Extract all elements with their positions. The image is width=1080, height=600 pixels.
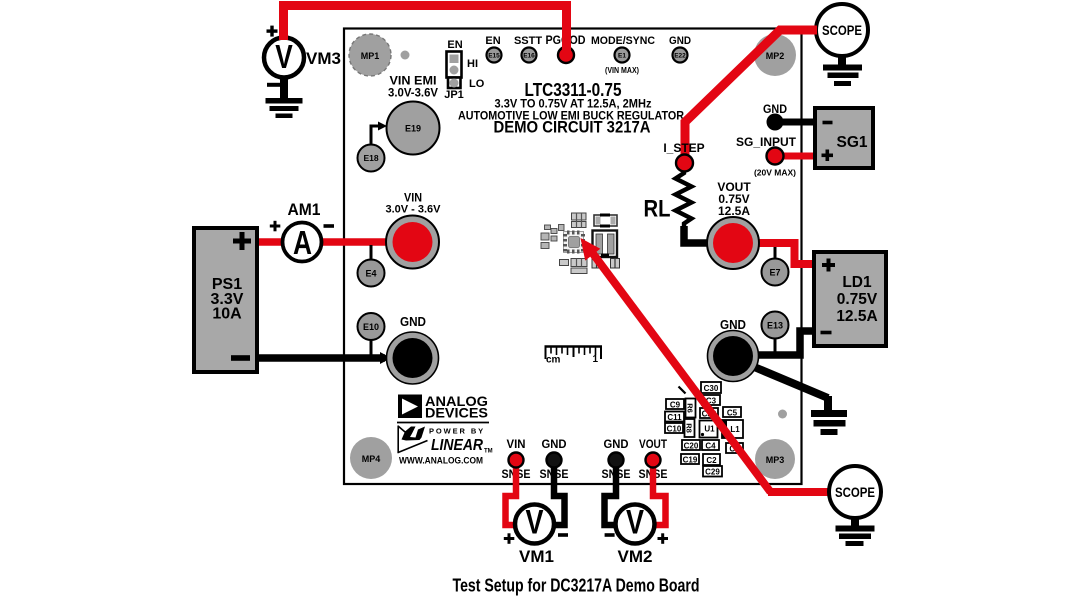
svg-text:AM1: AM1 xyxy=(288,200,321,219)
svg-text:SCOPE: SCOPE xyxy=(822,23,862,38)
svg-text:JP1: JP1 xyxy=(444,89,464,101)
svg-text:E7: E7 xyxy=(769,268,780,278)
svg-text:cm: cm xyxy=(546,355,561,366)
svg-text:V: V xyxy=(526,504,544,542)
svg-text:DEVICES: DEVICES xyxy=(425,405,488,421)
svg-text:12.5A: 12.5A xyxy=(718,204,750,218)
svg-text:VIN EMI: VIN EMI xyxy=(390,74,437,88)
svg-text:C9: C9 xyxy=(670,401,681,410)
svg-text:TM: TM xyxy=(484,449,493,455)
svg-text:GND: GND xyxy=(669,35,691,47)
svg-text:E13: E13 xyxy=(767,321,783,331)
svg-text:MP1: MP1 xyxy=(361,51,380,61)
svg-text:V: V xyxy=(275,38,293,75)
svg-text:LD1: LD1 xyxy=(842,274,872,291)
svg-text:0.75V: 0.75V xyxy=(837,291,878,308)
svg-text:VOUT: VOUT xyxy=(639,437,668,451)
svg-text:R8: R8 xyxy=(685,423,694,433)
svg-text:E18: E18 xyxy=(363,153,378,163)
svg-text:EN: EN xyxy=(485,35,500,47)
svg-text:DEMO CIRCUIT 3217A: DEMO CIRCUIT 3217A xyxy=(494,119,651,137)
svg-text:GND: GND xyxy=(400,314,426,329)
svg-text:LINEAR: LINEAR xyxy=(431,437,483,454)
svg-text:1: 1 xyxy=(593,354,599,365)
svg-text:SG1: SG1 xyxy=(836,134,867,151)
svg-text:C29: C29 xyxy=(705,468,720,477)
svg-text:SCOPE: SCOPE xyxy=(835,485,875,500)
svg-text:3.0V-3.6V: 3.0V-3.6V xyxy=(388,88,438,100)
svg-text:U1: U1 xyxy=(704,425,715,434)
svg-text:C20: C20 xyxy=(684,442,699,451)
svg-text:RL: RL xyxy=(644,196,671,223)
svg-text:3.3V TO 0.75V AT 12.5A, 2MHz: 3.3V TO 0.75V AT 12.5A, 2MHz xyxy=(495,99,652,111)
svg-text:EN: EN xyxy=(447,39,462,51)
svg-text:(VIN MAX): (VIN MAX) xyxy=(605,65,639,75)
svg-text:E22: E22 xyxy=(674,53,686,60)
svg-text:C19: C19 xyxy=(683,456,698,465)
svg-text:VM3: VM3 xyxy=(306,49,341,68)
svg-text:R6: R6 xyxy=(686,403,695,413)
svg-text:MODE/SYNC: MODE/SYNC xyxy=(591,35,655,47)
svg-text:HI: HI xyxy=(467,58,478,70)
svg-text:12.5A: 12.5A xyxy=(836,308,877,325)
svg-text:VIN: VIN xyxy=(507,437,526,451)
svg-text:GND: GND xyxy=(604,437,629,451)
svg-text:A: A xyxy=(293,224,312,261)
svg-text:3.0V - 3.6V: 3.0V - 3.6V xyxy=(385,204,441,216)
svg-text:VM1: VM1 xyxy=(519,547,554,566)
svg-text:GND: GND xyxy=(542,437,567,451)
svg-text:L1: L1 xyxy=(730,425,740,434)
svg-text:E1: E1 xyxy=(618,53,626,60)
svg-text:Test Setup for DC3217A Demo Bo: Test Setup for DC3217A Demo Board xyxy=(453,576,700,596)
svg-text:C5: C5 xyxy=(727,409,738,418)
svg-text:POWER BY: POWER BY xyxy=(429,427,485,436)
svg-text:SG_INPUT: SG_INPUT xyxy=(736,135,797,149)
svg-text:WWW.ANALOG.COM: WWW.ANALOG.COM xyxy=(399,456,483,466)
svg-text:(20V MAX): (20V MAX) xyxy=(754,168,796,178)
svg-text:E16: E16 xyxy=(523,53,535,60)
svg-text:MP4: MP4 xyxy=(362,454,381,464)
svg-text:C4: C4 xyxy=(705,442,716,451)
svg-text:10A: 10A xyxy=(212,306,242,323)
svg-text:SSTT: SSTT xyxy=(514,35,542,47)
svg-text:C2: C2 xyxy=(706,456,717,465)
svg-text:V: V xyxy=(626,504,644,542)
svg-text:LO: LO xyxy=(469,78,485,90)
svg-text:VM2: VM2 xyxy=(618,547,653,566)
svg-text:I_STEP: I_STEP xyxy=(663,141,704,155)
svg-text:LTC3311-0.75: LTC3311-0.75 xyxy=(525,80,622,100)
svg-text:E4: E4 xyxy=(365,269,376,279)
svg-text:C11: C11 xyxy=(667,413,682,422)
svg-text:E10: E10 xyxy=(363,322,379,332)
svg-text:E19: E19 xyxy=(405,124,421,134)
svg-text:C10: C10 xyxy=(667,425,682,434)
svg-text:C30: C30 xyxy=(704,384,719,393)
svg-text:MP3: MP3 xyxy=(766,455,785,465)
svg-text:E15: E15 xyxy=(488,53,500,60)
svg-text:MP2: MP2 xyxy=(766,51,785,61)
